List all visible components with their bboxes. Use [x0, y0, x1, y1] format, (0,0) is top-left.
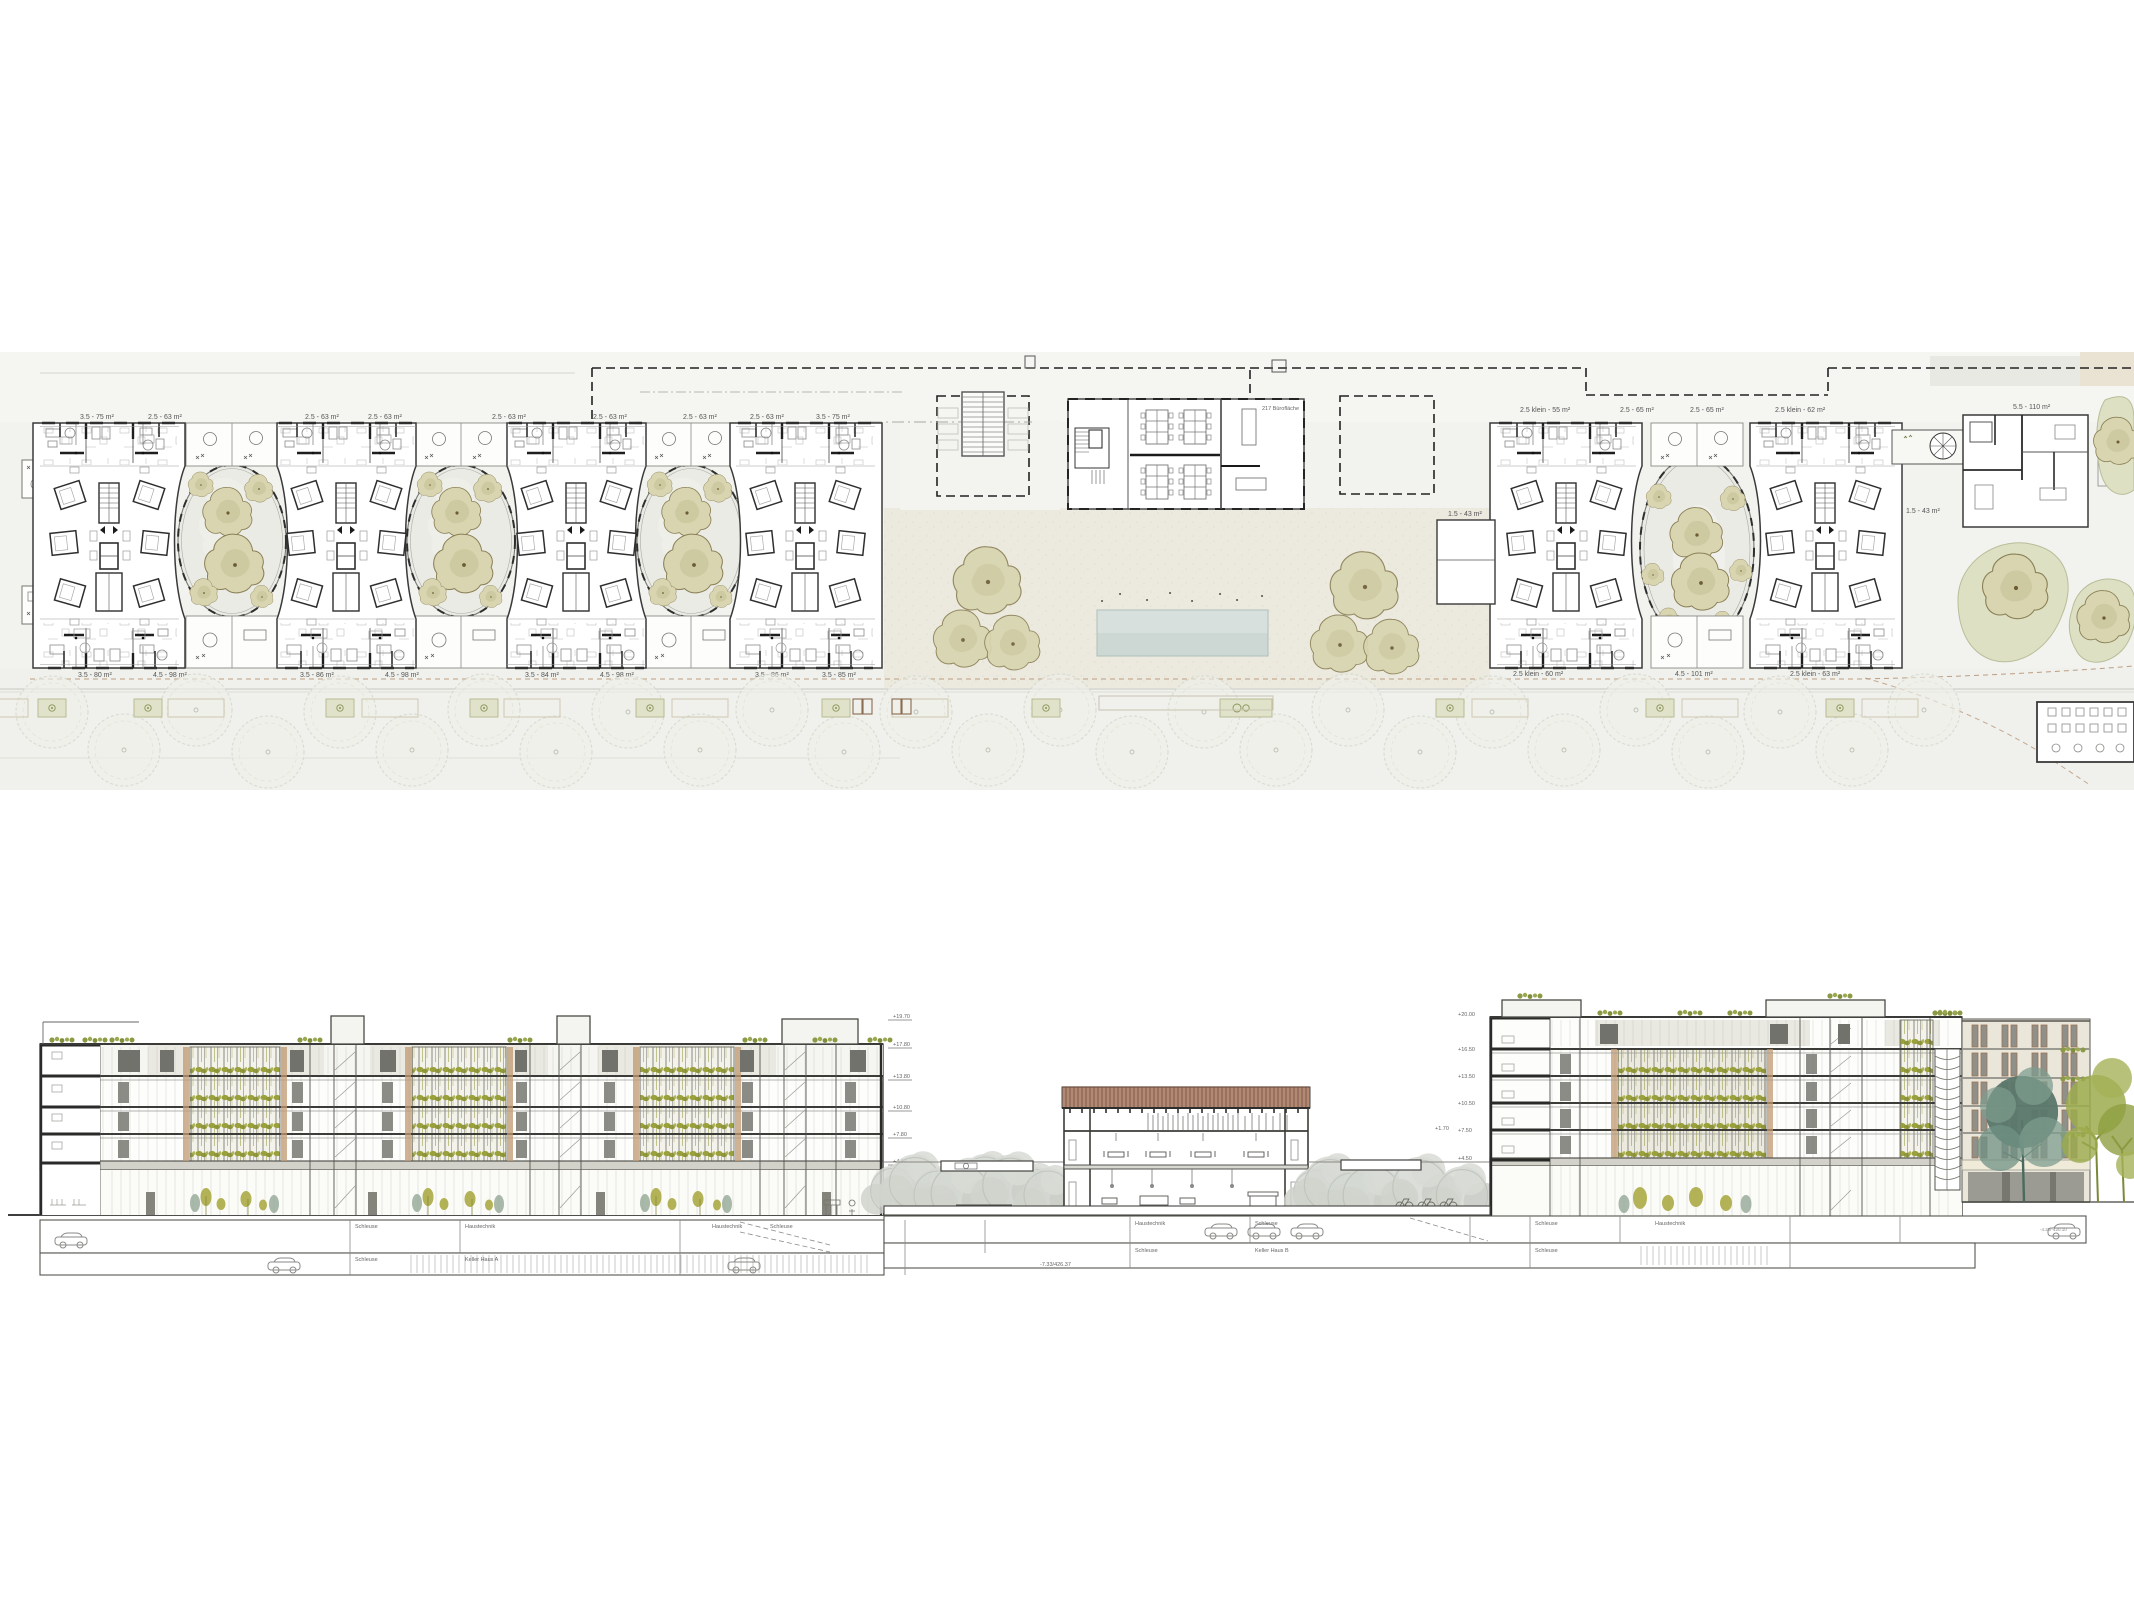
svg-text:2.5 - 65 m²: 2.5 - 65 m²	[1620, 407, 1655, 414]
svg-text:Keller Haus B: Keller Haus B	[1255, 1248, 1289, 1254]
svg-text:Haustechnik: Haustechnik	[712, 1224, 743, 1230]
svg-text:5.5 - 110 m²: 5.5 - 110 m²	[2013, 404, 2051, 411]
svg-text:Schleuse: Schleuse	[1135, 1248, 1158, 1254]
svg-text:4.5 - 98 m²: 4.5 - 98 m²	[385, 672, 420, 679]
svg-text:Keller Haus A: Keller Haus A	[465, 1257, 499, 1263]
svg-text:Schleuse: Schleuse	[1535, 1221, 1558, 1227]
svg-text:4.5 - 101 m²: 4.5 - 101 m²	[1675, 671, 1713, 678]
svg-text:+16.50: +16.50	[1458, 1047, 1475, 1053]
svg-text:+1.70: +1.70	[1435, 1126, 1449, 1132]
svg-text:Schleuse: Schleuse	[1535, 1248, 1558, 1254]
svg-text:-7.33/426.37: -7.33/426.37	[1040, 1262, 1071, 1268]
svg-text:Schleuse: Schleuse	[355, 1224, 378, 1230]
svg-text:Haustechnik: Haustechnik	[1135, 1221, 1166, 1227]
svg-text:3.5 - 75 m²: 3.5 - 75 m²	[80, 414, 115, 421]
svg-text:+4.50: +4.50	[1458, 1156, 1472, 1162]
svg-text:2.5 - 63 m²: 2.5 - 63 m²	[148, 414, 183, 421]
svg-text:1.5 - 43 m²: 1.5 - 43 m²	[1906, 508, 1941, 515]
svg-text:Schleuse: Schleuse	[770, 1224, 793, 1230]
svg-text:+13.50: +13.50	[1458, 1074, 1475, 1080]
svg-text:+10.50: +10.50	[1458, 1101, 1475, 1107]
svg-text:2.5 - 63 m²: 2.5 - 63 m²	[368, 414, 403, 421]
svg-text:2.5 klein - 63 m²: 2.5 klein - 63 m²	[1790, 671, 1841, 678]
svg-text:2.5 - 63 m²: 2.5 - 63 m²	[305, 414, 340, 421]
svg-text:+7.50: +7.50	[1458, 1128, 1472, 1134]
svg-text:2.5 - 63 m²: 2.5 - 63 m²	[683, 414, 718, 421]
svg-text:3.5 - 85 m²: 3.5 - 85 m²	[822, 672, 857, 679]
svg-text:3.5 - 75 m²: 3.5 - 75 m²	[816, 414, 851, 421]
svg-text:+13.80: +13.80	[893, 1074, 910, 1080]
svg-text:-4.20/-420.10: -4.20/-420.10	[2040, 1227, 2067, 1232]
svg-text:2.5 klein - 62 m²: 2.5 klein - 62 m²	[1775, 407, 1826, 414]
svg-text:Haustechnik: Haustechnik	[465, 1224, 496, 1230]
svg-text:+7.80: +7.80	[893, 1132, 907, 1138]
svg-text:2.5 - 65 m²: 2.5 - 65 m²	[1690, 407, 1725, 414]
svg-text:+20.00: +20.00	[1458, 1012, 1475, 1018]
svg-text:+17.80: +17.80	[893, 1042, 910, 1048]
svg-text:Schleuse: Schleuse	[355, 1257, 378, 1263]
svg-text:2.5 - 63 m²: 2.5 - 63 m²	[593, 414, 628, 421]
svg-text:Haustechnik: Haustechnik	[1655, 1221, 1686, 1227]
svg-text:+19.70: +19.70	[893, 1014, 910, 1020]
svg-text:2.5 klein - 55 m²: 2.5 klein - 55 m²	[1520, 407, 1571, 414]
svg-text:2.5 - 63 m²: 2.5 - 63 m²	[750, 414, 785, 421]
svg-text:217 Bürofläche: 217 Bürofläche	[1262, 406, 1299, 412]
svg-text:+10.80: +10.80	[893, 1105, 910, 1111]
svg-text:1.5 - 43 m²: 1.5 - 43 m²	[1448, 511, 1483, 518]
svg-text:2.5 - 63 m²: 2.5 - 63 m²	[492, 414, 527, 421]
svg-text:3.5 - 80 m²: 3.5 - 80 m²	[78, 672, 113, 679]
svg-text:3.5 - 84 m²: 3.5 - 84 m²	[525, 672, 560, 679]
svg-text:2.5 klein - 60 m²: 2.5 klein - 60 m²	[1513, 671, 1564, 678]
